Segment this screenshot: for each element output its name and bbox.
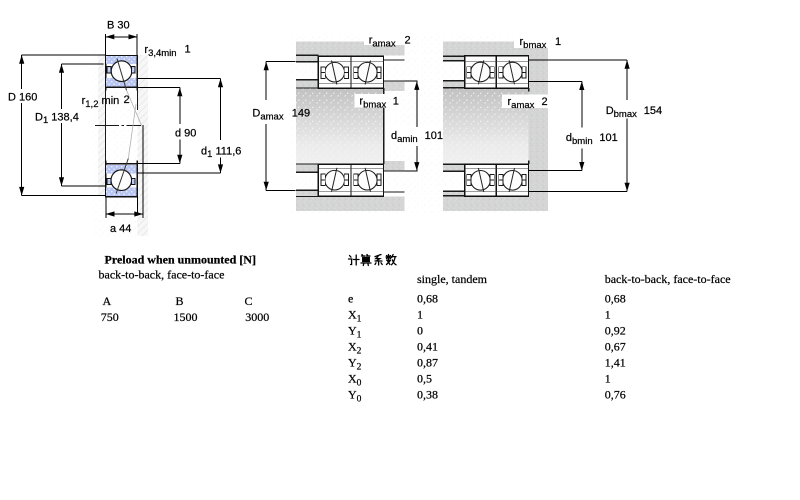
svg-text:Y0: Y0 <box>348 388 362 405</box>
svg-text:Y1: Y1 <box>348 324 362 341</box>
svg-text:1: 1 <box>393 96 399 108</box>
svg-text:X1: X1 <box>348 308 362 325</box>
svg-text:back-to-back, face-to-face: back-to-back, face-to-face <box>99 268 225 282</box>
svg-text:D 160: D 160 <box>8 92 37 104</box>
svg-text:750: 750 <box>101 310 119 324</box>
svg-text:1500: 1500 <box>174 310 198 324</box>
svg-text:0: 0 <box>417 324 423 338</box>
svg-text:C: C <box>245 294 253 308</box>
svg-text:1: 1 <box>417 308 423 322</box>
svg-text:2: 2 <box>124 94 130 106</box>
svg-text:e: e <box>348 292 353 306</box>
svg-text:101: 101 <box>599 132 617 144</box>
svg-text:1: 1 <box>605 372 611 386</box>
svg-text:single, tandem: single, tandem <box>417 272 488 286</box>
svg-text:r3,4min: r3,4min <box>144 44 176 59</box>
svg-text:dbmin: dbmin <box>566 132 593 147</box>
svg-text:1: 1 <box>185 44 191 56</box>
svg-text:back-to-back, face-to-face: back-to-back, face-to-face <box>605 272 731 286</box>
svg-text:B: B <box>176 294 184 308</box>
svg-text:154: 154 <box>644 105 662 117</box>
svg-text:0,87: 0,87 <box>417 356 438 370</box>
svg-text:0,41: 0,41 <box>417 340 438 354</box>
svg-text:0,67: 0,67 <box>605 340 626 354</box>
svg-text:0,38: 0,38 <box>417 388 438 402</box>
svg-text:a 44: a 44 <box>110 223 131 235</box>
svg-text:1,41: 1,41 <box>605 356 626 370</box>
svg-text:Dbmax: Dbmax <box>606 105 637 120</box>
svg-text:Y2: Y2 <box>348 356 362 373</box>
svg-text:0,92: 0,92 <box>605 324 626 338</box>
svg-text:Damax: Damax <box>252 108 283 123</box>
svg-text:2: 2 <box>405 35 411 47</box>
svg-text:0,68: 0,68 <box>417 292 438 306</box>
svg-text:0,68: 0,68 <box>605 292 626 306</box>
svg-text:2: 2 <box>542 96 548 108</box>
svg-text:1: 1 <box>555 36 561 48</box>
svg-text:0,5: 0,5 <box>417 372 432 386</box>
svg-text:3000: 3000 <box>245 310 269 324</box>
svg-text:X0: X0 <box>348 372 362 389</box>
svg-text:D1 138,4: D1 138,4 <box>35 112 79 127</box>
svg-text:1: 1 <box>605 308 611 322</box>
svg-text:Preload when unmounted [N]: Preload when unmounted [N] <box>105 253 256 267</box>
svg-text:X2: X2 <box>348 340 362 357</box>
svg-text:d 90: d 90 <box>175 128 196 140</box>
svg-text:0,76: 0,76 <box>605 388 626 402</box>
svg-text:149: 149 <box>292 108 310 120</box>
svg-text:B 30: B 30 <box>107 20 130 32</box>
svg-text:A: A <box>103 294 112 308</box>
svg-text:d1 111,6: d1 111,6 <box>201 146 241 161</box>
svg-text:101: 101 <box>425 130 443 142</box>
